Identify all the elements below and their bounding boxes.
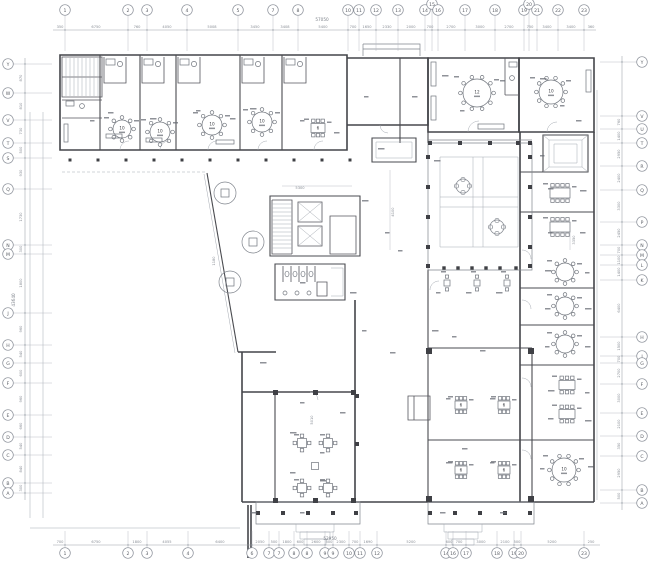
- chair: [492, 91, 496, 95]
- annotation-mark: [501, 271, 506, 273]
- dim-tick: [332, 544, 333, 545]
- chair: [459, 397, 462, 400]
- chair: [463, 410, 466, 413]
- grid-bubble-label: E: [7, 413, 10, 419]
- chair: [260, 108, 264, 112]
- chair: [550, 460, 554, 464]
- chair: [551, 184, 554, 187]
- dim-label: 2300: [336, 540, 346, 544]
- chair: [498, 462, 501, 465]
- dim-label: 6750: [91, 540, 101, 544]
- dim-tick: [24, 253, 25, 254]
- annotation-mark: [460, 110, 465, 112]
- dim-tick: [513, 544, 514, 545]
- chair: [480, 107, 484, 111]
- dim-label: 1690: [363, 540, 373, 544]
- dim-label: 500: [271, 540, 279, 544]
- chair: [319, 486, 322, 489]
- dim-label: 750: [527, 25, 535, 29]
- annotation-mark: [327, 122, 332, 124]
- dim-tick: [431, 29, 432, 30]
- dim-label: 6400: [215, 540, 225, 544]
- annotation-mark: [540, 78, 547, 80]
- chair: [219, 132, 223, 136]
- walls-layer: [60, 44, 597, 502]
- dim-tick: [24, 142, 25, 143]
- dim-tick: [24, 63, 25, 64]
- dim-tick: [24, 188, 25, 189]
- grid-bubble-label: 7: [268, 551, 271, 557]
- chair: [545, 104, 549, 108]
- annotation-mark: [446, 398, 451, 400]
- dim-tick: [297, 29, 298, 30]
- chair: [565, 376, 568, 379]
- annotation-mark: [390, 352, 396, 354]
- annotation-mark: [543, 217, 548, 219]
- chair: [171, 130, 175, 134]
- annotation-mark: [580, 232, 586, 234]
- grid-bubble-label: B: [6, 481, 9, 487]
- chair: [502, 462, 505, 465]
- table-seat-count: 10: [119, 126, 125, 131]
- annotation-mark: [119, 132, 125, 134]
- grid-bubble-label: Q: [640, 188, 644, 194]
- chair: [565, 405, 568, 408]
- grid-bubble-label: 23: [581, 551, 587, 557]
- dim-tick: [64, 544, 65, 545]
- annotation-mark: [290, 472, 296, 474]
- dim-label: 600: [297, 540, 305, 544]
- dim-tick: [465, 544, 466, 545]
- dim-label: 1730: [19, 212, 23, 222]
- column: [153, 159, 156, 162]
- dim-tick: [146, 544, 147, 545]
- table-seat-count: 10: [209, 122, 215, 127]
- chair: [201, 114, 205, 118]
- interior-dim: 4100: [391, 207, 395, 217]
- chair: [326, 449, 329, 452]
- grid-bubble-label: J: [6, 311, 8, 317]
- annotation-mark: [466, 292, 472, 294]
- dim-label: 730: [19, 127, 23, 135]
- bottom-total-dim: 52950: [323, 536, 337, 541]
- chair: [459, 91, 463, 95]
- annotation-mark: [462, 448, 468, 450]
- column: [514, 266, 517, 269]
- interior-dim: 5300: [295, 186, 305, 190]
- annotation-mark: [334, 132, 340, 134]
- annotation-mark: [104, 117, 109, 119]
- chair: [567, 482, 571, 486]
- grid-bubble-label: 18: [494, 551, 500, 557]
- column: [426, 155, 430, 159]
- grid-bubble-label: 4: [187, 551, 190, 557]
- chair: [459, 410, 462, 413]
- grid-bubble-label: P: [641, 220, 644, 226]
- chair: [537, 82, 541, 86]
- dim-tick: [621, 412, 622, 413]
- dim-label: 350: [57, 25, 65, 29]
- chair: [535, 90, 539, 94]
- grid-bubble-label: H: [6, 343, 9, 349]
- annotation-mark: [480, 350, 486, 352]
- annotation-mark: [250, 108, 257, 110]
- chair: [326, 479, 329, 482]
- grid-bubble-label: H: [640, 335, 643, 341]
- dim-label: 2950: [617, 149, 621, 159]
- chair: [506, 475, 509, 478]
- chair: [463, 397, 466, 400]
- column: [478, 511, 482, 515]
- chair: [548, 468, 552, 472]
- annotation-mark: [496, 292, 503, 294]
- dim-tick: [520, 544, 521, 545]
- chair: [571, 312, 575, 316]
- chair: [463, 475, 466, 478]
- chair: [300, 494, 303, 497]
- chair: [498, 397, 501, 400]
- annotation-mark: [320, 434, 325, 436]
- table-seat-count: 6: [460, 402, 463, 407]
- chair: [571, 405, 574, 408]
- dim-tick: [24, 482, 25, 483]
- chair: [300, 449, 303, 452]
- dim-tick: [621, 165, 622, 166]
- annotation-mark: [454, 76, 459, 78]
- annotation-mark: [471, 271, 476, 273]
- annotation-mark: [173, 122, 178, 124]
- left-total-dim: 43640: [11, 293, 16, 307]
- chair: [198, 123, 202, 127]
- annotation-mark: [378, 148, 385, 150]
- column: [209, 159, 212, 162]
- annotation-mark: [259, 125, 265, 127]
- dim-tick: [445, 544, 446, 545]
- chair: [566, 199, 569, 202]
- grid-bubble-label: 13: [395, 8, 401, 14]
- grid-bubble-label: 14: [422, 8, 428, 14]
- grid-bubble-label: N: [6, 243, 9, 249]
- annotation-mark: [300, 120, 305, 122]
- chair: [551, 199, 554, 202]
- annotation-mark: [585, 272, 590, 274]
- column: [181, 159, 184, 162]
- dim-tick: [621, 244, 622, 245]
- table-seat-count: 6: [503, 467, 506, 472]
- rect-table: [550, 222, 570, 232]
- chair: [551, 218, 554, 221]
- door-arcs: [120, 121, 557, 459]
- column: [321, 159, 324, 162]
- chair: [563, 282, 567, 286]
- grid-bubble-label: 19: [521, 8, 527, 14]
- annotation-mark: [243, 109, 248, 111]
- chair: [575, 270, 579, 274]
- dim-tick: [437, 29, 438, 30]
- annotation-mark: [585, 420, 592, 422]
- grid-bubble-label: F: [7, 381, 10, 387]
- dim-tick: [24, 382, 25, 383]
- column: [97, 159, 100, 162]
- annotation-mark: [543, 183, 548, 185]
- chair: [575, 342, 579, 346]
- chair: [251, 129, 255, 133]
- annotation-mark: [580, 190, 587, 192]
- annotation-mark: [572, 186, 577, 188]
- grid-bubble-label: 4: [186, 8, 189, 14]
- annotation-mark: [585, 346, 591, 348]
- chair: [273, 120, 277, 124]
- chair: [498, 475, 501, 478]
- dim-label: 700: [617, 246, 621, 254]
- chair: [563, 293, 567, 297]
- chair: [560, 420, 563, 423]
- annotation-mark: [442, 75, 449, 77]
- dim-tick: [237, 29, 238, 30]
- dim-label: 2000: [406, 25, 416, 29]
- chair: [326, 434, 329, 437]
- table-seat-count: 6: [503, 402, 506, 407]
- chair: [475, 288, 478, 291]
- dim-tick: [397, 29, 398, 30]
- chair: [505, 288, 508, 291]
- annotation-mark: [230, 118, 236, 120]
- chair: [571, 278, 575, 282]
- column: [426, 185, 430, 189]
- annotation-mark: [540, 155, 545, 157]
- annotation-mark: [543, 455, 548, 457]
- dim-label: 500: [19, 146, 23, 154]
- dim-label: 1100: [617, 255, 621, 265]
- grid-bubble-label: 2: [127, 8, 130, 14]
- chair: [223, 123, 227, 127]
- annotation-mark: [108, 112, 114, 114]
- chair: [561, 184, 564, 187]
- bath-fixtures: [66, 59, 517, 295]
- annotation-mark: [362, 330, 367, 332]
- grid-bubble-label: 5: [237, 8, 240, 14]
- chair: [506, 462, 509, 465]
- chair: [455, 475, 458, 478]
- chair: [312, 119, 315, 122]
- dim-tick: [621, 128, 622, 129]
- dim-tick: [557, 29, 558, 30]
- dim-label: 2050: [255, 540, 265, 544]
- table-seat-count: 6: [460, 467, 463, 472]
- dim-tick: [424, 29, 425, 30]
- dim-label: 600: [446, 540, 454, 544]
- chair: [558, 482, 562, 486]
- chair: [550, 477, 554, 481]
- furniture-layer: [64, 59, 591, 558]
- chair: [577, 468, 581, 472]
- chair: [489, 81, 493, 85]
- dim-tick: [523, 29, 524, 30]
- grid-bubble-label: 12: [373, 8, 379, 14]
- table-seat-count: 10: [259, 119, 265, 124]
- chair: [470, 107, 474, 111]
- dim-tick: [621, 61, 622, 62]
- annotation-mark: [490, 462, 495, 464]
- annotation-mark: [548, 232, 553, 234]
- annotation-mark: [364, 96, 369, 98]
- chair: [293, 441, 296, 444]
- chair: [565, 391, 568, 394]
- annotation-mark: [490, 398, 496, 400]
- chair: [334, 441, 337, 444]
- dim-label: 2700: [617, 368, 621, 378]
- chair: [455, 462, 458, 465]
- grid-dimension-layer: 1234578101112131415161718192021222335067…: [3, 0, 648, 558]
- annotation-mark: [436, 292, 441, 294]
- chair: [316, 134, 319, 137]
- square-table: [324, 484, 333, 493]
- dim-tick: [536, 29, 537, 30]
- dim-tick: [268, 544, 269, 545]
- table-seat-count: 6: [317, 125, 320, 130]
- column: [125, 159, 128, 162]
- dim-tick: [621, 383, 622, 384]
- annotation-mark: [530, 77, 535, 79]
- dim-tick: [24, 119, 25, 120]
- chair: [566, 218, 569, 221]
- square-table: [324, 439, 333, 448]
- dim-tick: [621, 355, 622, 356]
- column: [498, 266, 501, 269]
- dim-label: 3300: [617, 201, 621, 211]
- grid-bubble-label: 11: [356, 8, 362, 14]
- chair: [552, 304, 556, 308]
- annotation-mark: [448, 396, 453, 398]
- column: [528, 155, 532, 159]
- table-seat-count: 12: [474, 90, 480, 95]
- dim-tick: [621, 142, 622, 143]
- column: [528, 215, 532, 219]
- dim-tick: [324, 544, 325, 545]
- chair: [326, 494, 329, 497]
- annotation-mark: [547, 294, 552, 296]
- grid-bubble-label: 9: [332, 551, 335, 557]
- dim-tick: [494, 29, 495, 30]
- chair: [489, 101, 493, 105]
- annotation-mark: [494, 79, 499, 81]
- chair: [269, 129, 273, 133]
- chair: [506, 397, 509, 400]
- annotation-mark: [275, 112, 280, 114]
- chair: [251, 111, 255, 115]
- dim-tick: [24, 436, 25, 437]
- grid-bubble-label: 21: [534, 8, 540, 14]
- annotation-mark: [474, 96, 480, 98]
- dim-label: 500: [617, 492, 621, 500]
- chair: [555, 334, 559, 338]
- dim-tick: [24, 344, 25, 345]
- annotation-mark: [193, 112, 198, 114]
- chair: [480, 75, 484, 79]
- grid-bubble-label: D: [6, 435, 10, 441]
- dim-tick: [251, 544, 252, 545]
- chair: [560, 376, 563, 379]
- dim-label: 300: [19, 245, 23, 253]
- dim-label: 700: [57, 540, 65, 544]
- chair: [556, 184, 559, 187]
- chair: [571, 262, 575, 266]
- grid-bubble-label: 20: [526, 2, 532, 8]
- dim-label: 6750: [91, 25, 101, 29]
- grid-bubble-label: 2: [127, 551, 130, 557]
- dim-label: 760: [134, 25, 142, 29]
- annotation-mark: [290, 432, 297, 434]
- chair: [248, 120, 252, 124]
- annotation-mark: [552, 405, 557, 407]
- annotation-mark: [545, 346, 550, 348]
- interior-dim: 1180: [212, 256, 216, 266]
- chair: [132, 127, 136, 131]
- column: [442, 266, 445, 269]
- column: [528, 141, 532, 145]
- dim-tick: [452, 544, 453, 545]
- dim-label: 3000: [476, 540, 486, 544]
- grid-bubble-label: T: [640, 141, 644, 147]
- annotation-mark: [577, 263, 582, 265]
- column: [293, 159, 296, 162]
- annotation-mark: [547, 260, 552, 262]
- table-seat-count: 10: [157, 129, 163, 134]
- dim-tick: [24, 454, 25, 455]
- dim-tick: [496, 544, 497, 545]
- annotation-mark: [150, 118, 157, 120]
- chair: [462, 101, 466, 105]
- chair: [149, 121, 153, 125]
- dim-label: 5200: [547, 540, 557, 544]
- annotation-mark: [441, 271, 446, 273]
- annotation-mark: [469, 464, 474, 466]
- chair: [574, 477, 578, 481]
- chair: [567, 454, 571, 458]
- chair: [459, 462, 462, 465]
- chair: [445, 275, 448, 278]
- annotation-mark: [300, 512, 305, 514]
- floor-plan-canvas: 1234578101112131415161718192021222335067…: [0, 0, 650, 563]
- dim-tick: [621, 221, 622, 222]
- dim-label: 960: [19, 325, 23, 333]
- dim-tick: [146, 29, 147, 30]
- chair: [561, 199, 564, 202]
- generated-furniture-layer: [69, 75, 581, 515]
- chair: [260, 133, 264, 137]
- annotation-mark: [340, 412, 346, 414]
- annotation-mark: [440, 512, 446, 514]
- dim-label: 5200: [406, 540, 416, 544]
- annotation-mark: [385, 232, 390, 234]
- dim-label: 300: [19, 484, 23, 492]
- grid-bubble-label: 18: [492, 8, 498, 14]
- round-table: [556, 335, 574, 353]
- chair: [561, 233, 564, 236]
- dim-label: 250: [588, 540, 596, 544]
- dim-label: 700: [350, 25, 358, 29]
- annotation-mark: [300, 282, 306, 284]
- chair: [300, 479, 303, 482]
- chair: [506, 410, 509, 413]
- dim-label: 2700: [504, 25, 514, 29]
- annotation-mark: [294, 434, 299, 436]
- column: [453, 511, 457, 515]
- grid-bubble-label: 6: [251, 551, 254, 557]
- chair: [556, 199, 559, 202]
- dim-label: 2700: [446, 25, 456, 29]
- dim-label: 700: [427, 25, 435, 29]
